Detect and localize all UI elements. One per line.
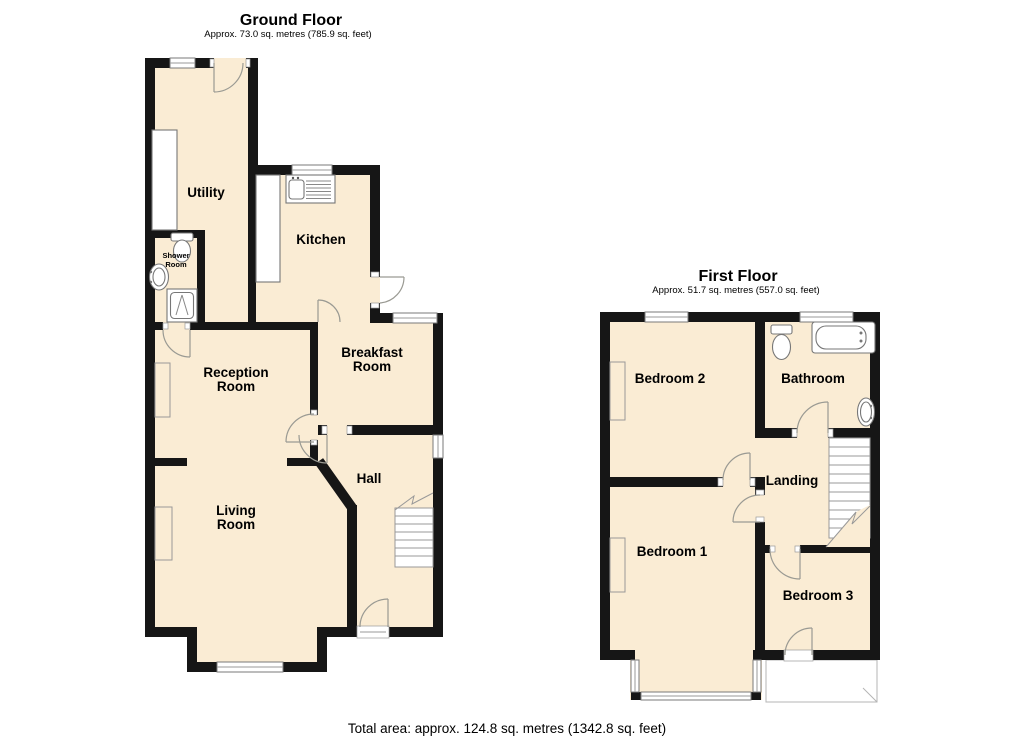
- room-label-landing: Landing: [766, 473, 819, 488]
- first-stairs-icon: [826, 438, 870, 547]
- bathroom-window-icon: [800, 312, 853, 322]
- floorplan-page: Ground Floor Approx. 73.0 sq. metres (78…: [0, 0, 1024, 745]
- room-label-breakfast-2: Room: [353, 359, 391, 374]
- bathroom-basin-icon: [858, 398, 875, 426]
- shower-tray-icon: [167, 289, 197, 322]
- bedroom1-fireplace: [610, 538, 625, 592]
- ground-floor-title: Ground Floor: [240, 12, 342, 29]
- room-label-living-2: Room: [217, 517, 255, 532]
- room-label-hall: Hall: [357, 471, 382, 486]
- first-floor-plan: First Floor Approx. 51.7 sq. metres (557…: [600, 268, 880, 702]
- utility-window-icon: [170, 58, 195, 68]
- room-label-breakfast-1: Breakfast: [341, 345, 403, 360]
- floorplan-canvas: Ground Floor Approx. 73.0 sq. metres (78…: [0, 0, 1024, 745]
- kitchen-sink-icon: [286, 175, 335, 203]
- room-label-reception-2: Room: [217, 379, 255, 394]
- utility-worktop: [152, 130, 177, 230]
- kitchen-window-icon: [292, 165, 332, 175]
- bedroom2-window-icon: [645, 312, 688, 322]
- breakfast-window-icon: [393, 313, 437, 323]
- living-fireplace: [155, 507, 172, 560]
- ground-floor-slab: [145, 58, 443, 672]
- reception-fireplace: [155, 363, 170, 417]
- room-label-bathroom: Bathroom: [781, 371, 845, 386]
- room-label-reception-1: Reception: [203, 365, 268, 380]
- first-floor-area: Approx. 51.7 sq. metres (557.0 sq. feet): [652, 285, 819, 296]
- bedroom2-fireplace: [610, 362, 625, 420]
- room-label-bedroom2: Bedroom 2: [635, 371, 706, 386]
- bay-window-icon: [217, 662, 283, 672]
- first-floor-title: First Floor: [698, 268, 777, 285]
- hall-window-icon: [433, 435, 443, 458]
- flat-roof-outline: [766, 660, 877, 702]
- room-label-kitchen: Kitchen: [296, 232, 346, 247]
- room-label-shower-2: Room: [165, 260, 187, 269]
- ground-floor-area: Approx. 73.0 sq. metres (785.9 sq. feet): [204, 29, 371, 40]
- room-label-utility: Utility: [187, 185, 225, 200]
- room-label-bedroom3: Bedroom 3: [783, 588, 854, 603]
- ground-floor-plan: Ground Floor Approx. 73.0 sq. metres (78…: [145, 12, 443, 672]
- room-label-shower-1: Shower: [162, 251, 189, 260]
- bathroom-toilet-icon: [771, 325, 792, 360]
- room-label-living-1: Living: [216, 503, 256, 518]
- room-label-bedroom1: Bedroom 1: [637, 544, 708, 559]
- bathtub-icon: [812, 322, 875, 353]
- kitchen-counter: [256, 175, 280, 282]
- total-area-label: Total area: approx. 124.8 sq. metres (13…: [348, 721, 666, 736]
